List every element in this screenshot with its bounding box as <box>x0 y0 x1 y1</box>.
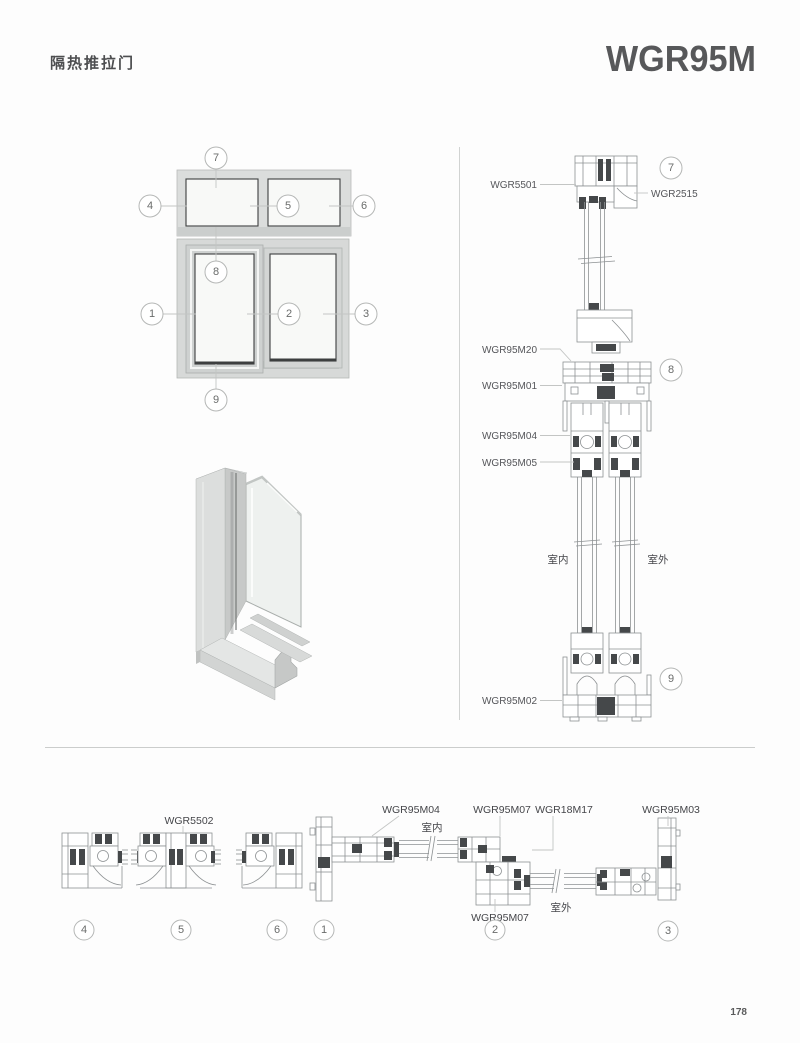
horizontal-section-labels: WGR95M04 室内 WGR95M07 WGR18M17 WGR95M03 W… <box>372 804 700 924</box>
isometric-profile-sample <box>185 460 325 705</box>
sliding-panel-right <box>264 248 342 368</box>
svg-text:5: 5 <box>285 200 291 212</box>
hsection-callout-5: 5 <box>171 920 191 940</box>
section-detail-4 <box>62 833 128 888</box>
label-sash-head: WGR5501 <box>490 180 537 191</box>
elevation-callout-3: 3 <box>355 303 377 325</box>
elevation-diagram: 7 4 5 6 8 1 2 3 9 <box>60 140 420 420</box>
section-detail-3 <box>596 818 680 900</box>
svg-text:9: 9 <box>668 673 674 685</box>
elevation-callout-2: 2 <box>278 303 300 325</box>
label-frame-head: WGR2515 <box>651 189 698 200</box>
elevation-callout-5: 5 <box>277 195 299 217</box>
vsection-callout-9: 9 <box>660 668 682 690</box>
catalog-page: 隔热推拉门 WGR95M 178 <box>0 0 800 1043</box>
hsection-callout-3: 3 <box>658 921 678 941</box>
horizontal-section-diagram: WGR5502 <box>40 785 760 950</box>
label-sash-bottom: WGR95M20 <box>482 345 537 356</box>
label-transom-mullion: WGR5502 <box>164 815 213 827</box>
elevation-callout-4: 4 <box>139 195 161 217</box>
vertical-section-diagram: WGR5501 WGR2515 WGR95M20 WGR95M01 WGR95M… <box>450 140 760 740</box>
page-title: 隔热推拉门 <box>50 52 135 73</box>
svg-text:6: 6 <box>274 924 280 936</box>
svg-text:8: 8 <box>213 266 219 278</box>
label-indoor: 室内 <box>548 553 569 566</box>
label-track-top: WGR95M01 <box>482 381 537 392</box>
head-detail <box>575 156 637 209</box>
svg-text:5: 5 <box>178 924 184 936</box>
svg-text:7: 7 <box>213 152 219 164</box>
svg-text:6: 6 <box>361 200 367 212</box>
label-insert: WGR18M17 <box>535 804 593 816</box>
elevation-callout-1: 1 <box>141 303 163 325</box>
elevation-callout-7: 7 <box>205 147 227 169</box>
vsection-callout-8: 8 <box>660 359 682 381</box>
svg-text:4: 4 <box>147 200 153 212</box>
label-outdoor: 室外 <box>648 553 669 566</box>
svg-text:3: 3 <box>665 925 671 937</box>
hsection-callout-1: 1 <box>314 920 334 940</box>
model-code: WGR95M <box>606 38 756 80</box>
divider-line <box>45 747 755 748</box>
label-frame-side: WGR95M04 <box>382 804 440 816</box>
transom-pane-left <box>186 179 258 226</box>
label-glazing-bead: WGR95M05 <box>482 458 537 469</box>
page-number: 178 <box>730 1007 747 1018</box>
elevation-callout-8: 8 <box>205 261 227 283</box>
label-interlock-a: WGR95M07 <box>473 804 531 816</box>
hsection-callout-6: 6 <box>267 920 287 940</box>
vsection-callout-7: 7 <box>660 157 682 179</box>
elevation-callout-6: 6 <box>353 195 375 217</box>
label-sash-top-rail: WGR95M04 <box>482 431 537 442</box>
hsection-callout-2: 2 <box>485 920 505 940</box>
hsection-callout-4: 4 <box>74 920 94 940</box>
label-track-bottom: WGR95M02 <box>482 696 537 707</box>
svg-text:2: 2 <box>492 924 498 936</box>
svg-text:7: 7 <box>668 162 674 174</box>
svg-text:3: 3 <box>363 308 369 320</box>
label-indoor-h: 室内 <box>422 821 443 834</box>
sliding-panel-left <box>186 245 263 373</box>
mid-sash-bottom-detail <box>577 303 632 353</box>
svg-text:1: 1 <box>149 308 155 320</box>
svg-text:4: 4 <box>81 924 87 936</box>
label-jamb: WGR95M03 <box>642 804 700 816</box>
sliding-leaf-sections <box>571 403 641 695</box>
section-detail-6 <box>236 833 302 888</box>
elevation-callout-9: 9 <box>205 389 227 411</box>
section-detail-5 <box>131 833 221 888</box>
svg-text:9: 9 <box>213 394 219 406</box>
upper-glass <box>578 202 615 310</box>
svg-text:1: 1 <box>321 924 327 936</box>
svg-text:2: 2 <box>286 308 292 320</box>
section-detail-2 <box>458 837 596 905</box>
svg-text:8: 8 <box>668 364 674 376</box>
label-outdoor-h: 室外 <box>551 901 572 914</box>
